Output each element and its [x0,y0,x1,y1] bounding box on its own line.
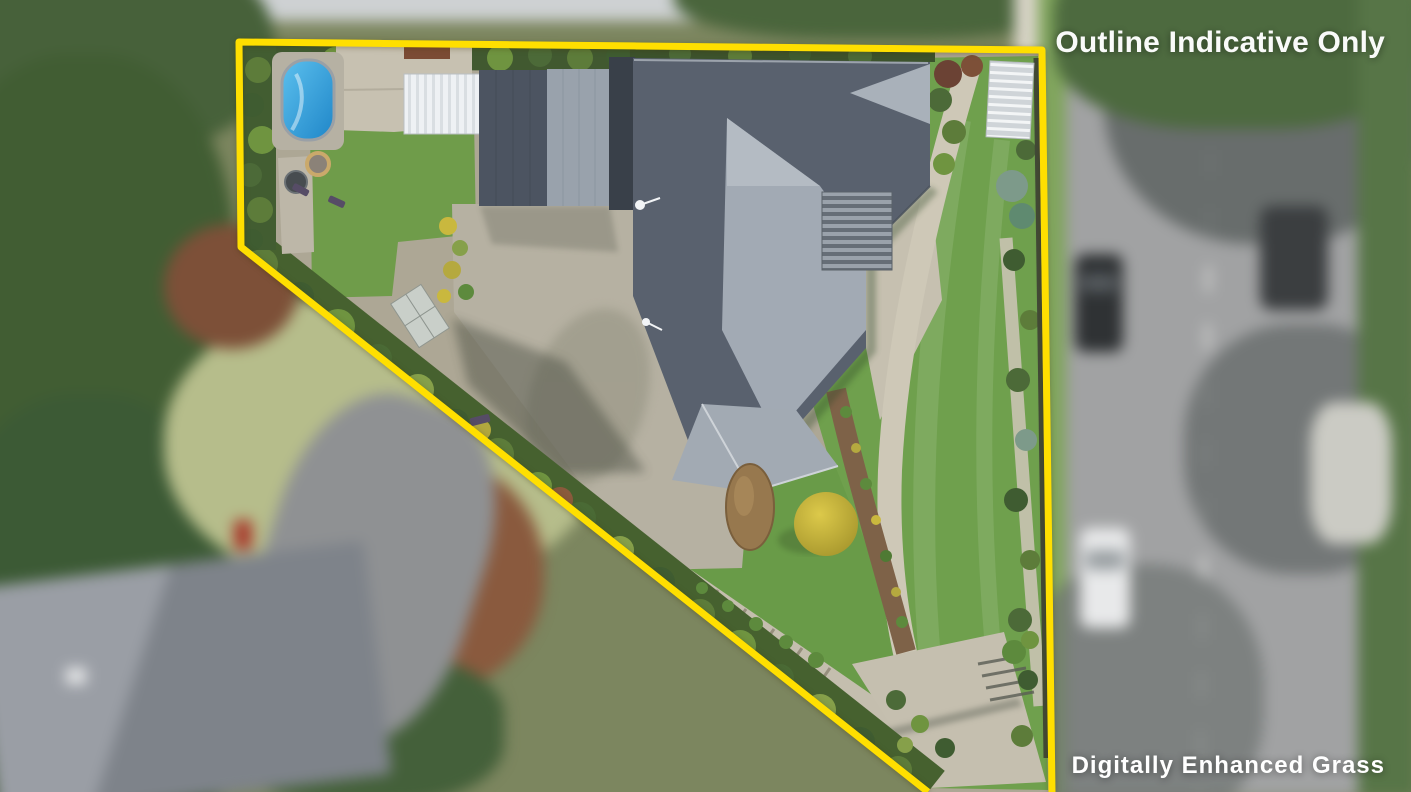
pale-patch-right [1310,402,1392,544]
parked-car-white-windshield [1086,550,1124,570]
louver-fence [986,61,1034,139]
conifer-highlight [734,476,754,516]
white-shed-roof [404,74,480,134]
neighbor-roof-top [214,0,734,21]
fire-pit [307,153,329,175]
swimming-pool [282,60,334,140]
pergola-slatted [822,192,892,270]
neighbor-chimney [66,668,86,684]
neighbor-house-roof [0,541,392,792]
outline-indicative-label: Outline Indicative Only [1055,26,1385,60]
parked-car-dark [1075,254,1123,352]
parked-car-dark-windshield [1081,274,1117,292]
parked-car-white [1080,528,1130,628]
garage-roof-light [547,69,609,206]
timber-pergola [404,44,450,59]
parked-suv-dark [1260,206,1328,310]
topiary-golden-ball [794,492,858,556]
red-car [234,520,252,550]
gutter-shadow-strip [609,57,635,210]
aerial-property-photo: Outline Indicative Only Digitally Enhanc… [0,0,1411,792]
digitally-enhanced-grass-label: Digitally Enhanced Grass [1072,752,1385,780]
trees-right-edge [1358,0,1411,792]
